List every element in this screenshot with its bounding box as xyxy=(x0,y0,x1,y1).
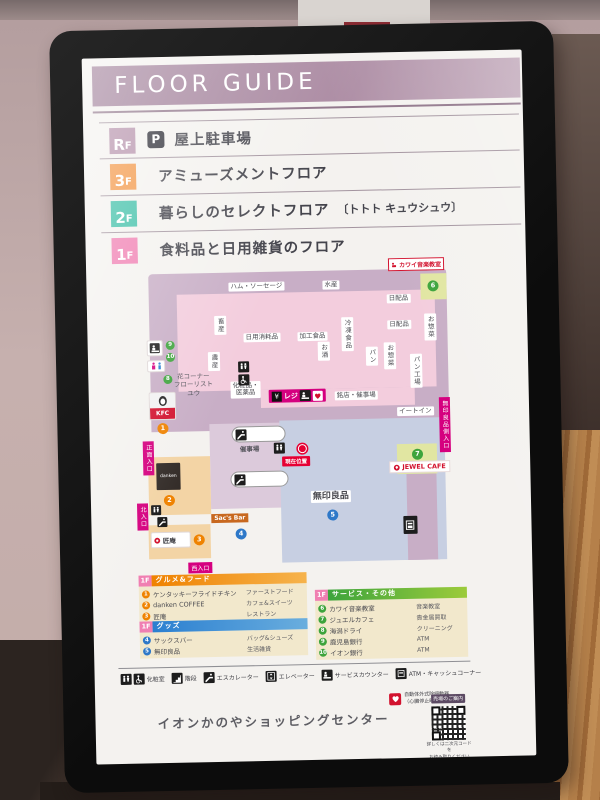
dept-souzai-right: お惣菜 xyxy=(424,313,437,340)
dept-daily-goods: 日用消耗品 xyxy=(243,333,280,343)
mall-title: イオンかのやショッピングセンター xyxy=(157,708,389,732)
kfc-label: KFC xyxy=(150,408,175,420)
shop-takumian-box: 匠庵 xyxy=(152,533,190,548)
legend-goods: 1F グッズ 4 サックスバー バッグ&シューズ 5 無印良品 生活雑貨 xyxy=(139,618,308,659)
dept-daily-1: 日配品 xyxy=(387,294,411,304)
aed-map-icon xyxy=(313,390,323,400)
escalator-track xyxy=(231,425,285,442)
event-hall-label: 催事場 xyxy=(240,445,260,454)
floor-label-rf: 屋上駐車場 xyxy=(174,127,252,150)
entrance-north: 北入口 xyxy=(137,503,149,530)
floor-row-3f: 3F アミューズメントフロア xyxy=(110,159,328,191)
restroom-icon xyxy=(121,674,132,685)
restroom-icon xyxy=(151,362,156,370)
dept-meiten-event: 銘店・催事場 xyxy=(335,391,378,401)
qr-code xyxy=(431,706,466,741)
escalator-track xyxy=(230,470,288,487)
aed-icon xyxy=(389,693,401,705)
restroom-icon xyxy=(151,505,161,515)
floor-badge-2f: 2F xyxy=(111,200,138,227)
dept-ham-sausage: ハム・ソーセージ xyxy=(228,281,284,292)
music-school-icon xyxy=(391,262,397,268)
facility-elevator: エレベーター xyxy=(266,670,315,682)
restroom-icon xyxy=(274,443,285,454)
dept-fish: 水産 xyxy=(322,280,339,290)
floor-label-2f: 暮らしのセレクトフロア xyxy=(159,199,330,224)
service-counter-icon xyxy=(322,670,333,681)
shop-sacs-bar: Sac's Bar xyxy=(211,513,248,523)
poster-frame: FLOOR GUIDE RF P 屋上駐車場 3F アミューズメントフロア 2F… xyxy=(49,21,569,793)
dept-produce: 農産 xyxy=(208,352,220,371)
atm-icon xyxy=(396,668,407,679)
floor-tag: 1F xyxy=(315,590,328,601)
header-band: FLOOR GUIDE xyxy=(92,58,521,107)
entrance-muji-side: 無印良品側入口 xyxy=(439,397,451,452)
legend-services: 1F サービス・その他 6 カワイ音楽教室 音楽教室 7 ジュエルカフェ 貴金属… xyxy=(315,587,468,660)
flower-corner-label: 花コーナー フローリスト ユウ xyxy=(170,372,217,398)
entrance-west: 西入口 xyxy=(188,562,212,574)
page-title: FLOOR GUIDE xyxy=(92,58,521,107)
floor-sublabel-2f: 〔トトト キュウシュウ〕 xyxy=(337,198,462,217)
register-label: レジ xyxy=(284,391,298,401)
divider xyxy=(99,114,519,124)
shop-muji: 無印良品 xyxy=(311,490,351,503)
service-counter-box xyxy=(148,341,162,355)
dept-eat-in: イートイン xyxy=(397,406,434,416)
legend-gourmet: 1F グルメ&フード 1 ケンタッキーフライドチキン ファーストフード 2 da… xyxy=(138,572,307,624)
wheelchair-icon xyxy=(238,374,249,385)
floor-tag: 1F xyxy=(138,575,151,586)
floor-map-1f: カワイ音楽教室 ハム・ソーセージ 水産 日配品 日配品 お惣菜 パン工場 畜産 … xyxy=(110,251,469,574)
restroom-icon xyxy=(238,361,249,372)
facility-escalator: エスカレーター xyxy=(204,671,259,683)
dept-daily-2: 日配品 xyxy=(387,320,411,330)
atm-icon xyxy=(403,516,417,534)
dept-sake: お酒 xyxy=(318,342,330,361)
qr-note: 詳しくは二次元コードを お読み取りください xyxy=(426,742,472,762)
restroom-box xyxy=(148,361,164,371)
service-counter-icon xyxy=(150,343,160,353)
dept-processed-food: 加工食品 xyxy=(297,332,327,342)
entrance-front: 正面入口 xyxy=(143,441,155,475)
service-counter-icon xyxy=(300,390,311,401)
qr-block: 売場のご案内 詳しくは二次元コードを お読み取りください xyxy=(425,685,473,762)
dept-frozen: 冷凍食品 xyxy=(341,317,354,351)
floor-badge-rf: RF xyxy=(109,127,136,154)
escalator-icon xyxy=(204,672,215,683)
qr-badge: 売場のご案内 xyxy=(431,694,465,704)
wheelchair-icon xyxy=(134,674,145,685)
takumian-icon xyxy=(154,537,161,544)
register-bar: ¥ レジ xyxy=(269,389,326,403)
facility-stairs: 階段 xyxy=(172,672,197,684)
dept-bread: パン xyxy=(366,347,378,366)
danken-coffee-logo: danken xyxy=(156,463,181,490)
shop-jewel-cafe: JEWEL CAFE xyxy=(390,461,449,472)
floor-row-rf: RF P 屋上駐車場 xyxy=(109,124,252,154)
gem-icon xyxy=(393,464,400,471)
floor-tag: 1F xyxy=(139,621,152,632)
elevator-icon xyxy=(266,671,277,682)
facility-service-counter: サービスカウンター xyxy=(322,668,389,680)
floor-badge-3f: 3F xyxy=(110,163,137,190)
floor-row-2f: 2F 暮らしのセレクトフロア 〔トトト キュウシュウ〕 xyxy=(111,193,463,227)
stairs-icon xyxy=(172,673,183,684)
floor-label-3f: アミューズメントフロア xyxy=(158,162,328,187)
facility-icon-row: 化粧室 階段 エスカレーター エレベーター xyxy=(121,666,482,685)
escalator-icon xyxy=(234,474,245,485)
restroom-icon xyxy=(157,362,162,370)
legend-item: 10 イオン銀行 ATM xyxy=(319,644,465,658)
dept-meat: 畜産 xyxy=(214,316,226,335)
dept-souzai-2: お惣菜 xyxy=(384,342,397,369)
kawai-music-label: カワイ音楽教室 xyxy=(388,257,444,271)
dept-bakery-plant: パン工場 xyxy=(410,354,423,388)
floor-guide-poster: FLOOR GUIDE RF P 屋上駐車場 3F アミューズメントフロア 2F… xyxy=(82,49,537,764)
current-location-label: 現在位置 xyxy=(282,456,310,467)
escalator-icon xyxy=(157,517,167,527)
parking-icon: P xyxy=(147,131,164,148)
escalator-icon xyxy=(235,429,246,440)
map-marker-4: 4 xyxy=(236,528,247,539)
cash-icon: ¥ xyxy=(272,391,282,401)
facility-atm: ATM・キャッシュコーナー xyxy=(396,666,482,679)
facility-restroom: 化粧室 xyxy=(121,673,165,685)
map-marker-1: 1 xyxy=(157,423,168,434)
